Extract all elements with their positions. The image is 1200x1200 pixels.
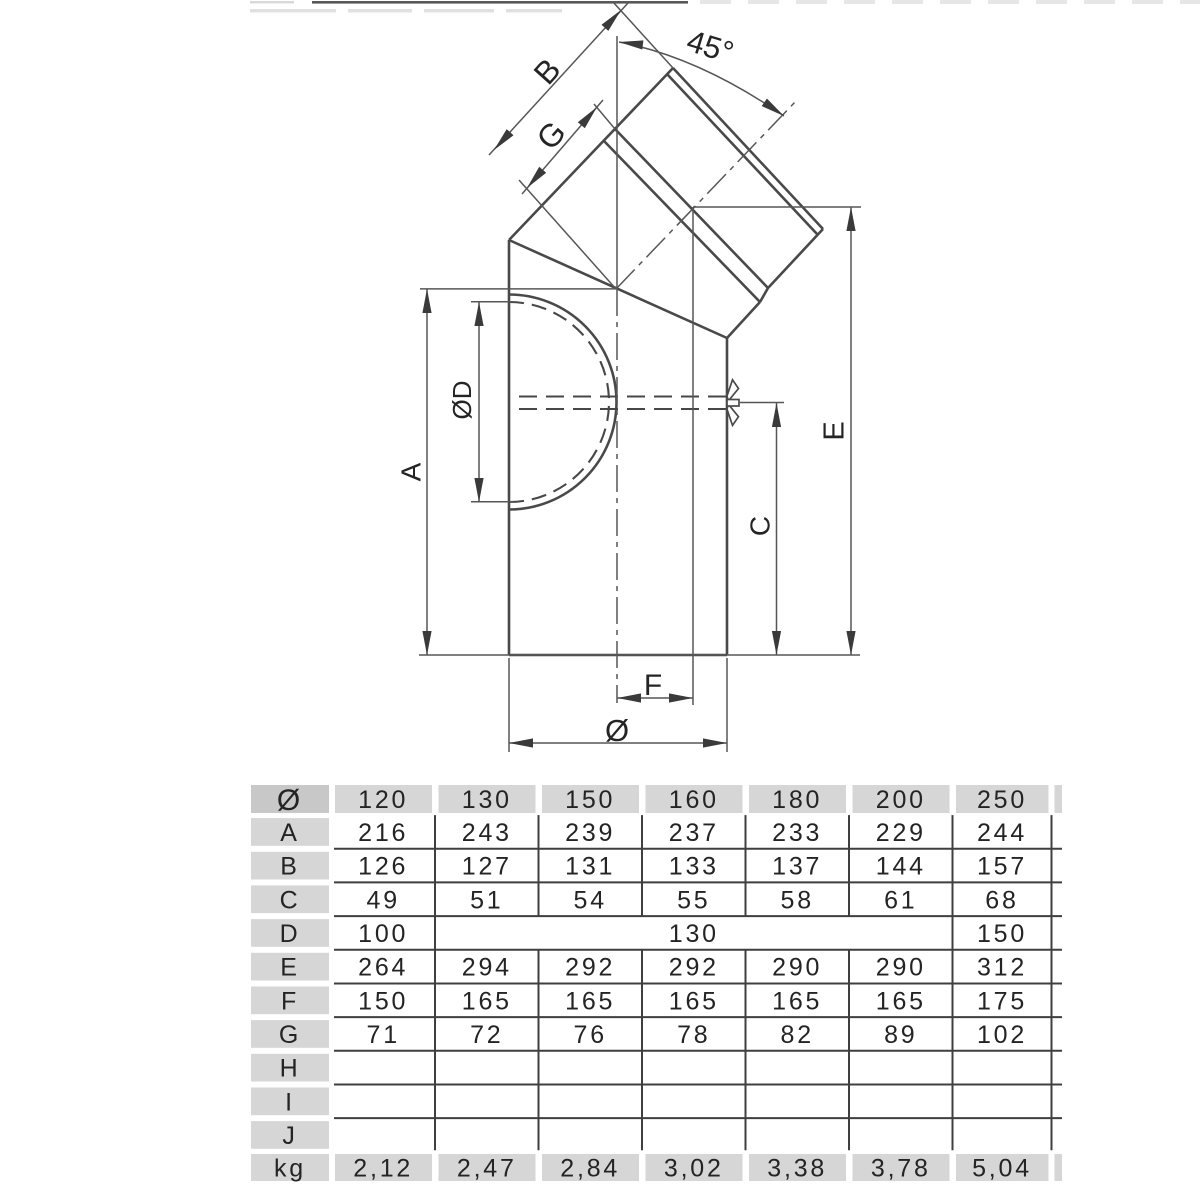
svg-text:237: 237	[669, 819, 719, 847]
svg-text:292: 292	[565, 954, 615, 982]
svg-text:89: 89	[884, 1021, 917, 1049]
svg-text:3,78: 3,78	[871, 1155, 931, 1183]
svg-text:290: 290	[876, 954, 926, 982]
svg-text:165: 165	[876, 987, 926, 1015]
svg-text:G: G	[279, 1021, 301, 1049]
svg-text:2,84: 2,84	[560, 1155, 620, 1183]
svg-text:3,02: 3,02	[664, 1155, 724, 1183]
svg-text:E: E	[819, 421, 851, 440]
svg-text:175: 175	[977, 987, 1027, 1015]
svg-text:165: 165	[772, 987, 822, 1015]
svg-text:180: 180	[772, 786, 822, 814]
svg-text:264: 264	[358, 954, 408, 982]
svg-text:144: 144	[876, 853, 926, 881]
svg-text:B: B	[280, 853, 299, 881]
svg-text:126: 126	[358, 853, 408, 881]
svg-text:kg: kg	[274, 1155, 306, 1183]
svg-text:49: 49	[366, 886, 399, 914]
svg-text:130: 130	[462, 786, 512, 814]
svg-text:165: 165	[462, 987, 512, 1015]
svg-text:120: 120	[358, 786, 408, 814]
svg-text:78: 78	[677, 1021, 710, 1049]
svg-text:D: D	[280, 920, 301, 948]
svg-text:Ø: Ø	[605, 713, 629, 748]
svg-text:5,04: 5,04	[972, 1155, 1032, 1183]
svg-text:243: 243	[462, 819, 512, 847]
svg-text:150: 150	[565, 786, 615, 814]
svg-text:2,12: 2,12	[353, 1155, 413, 1183]
svg-text:55: 55	[677, 886, 710, 914]
svg-text:250: 250	[977, 786, 1027, 814]
svg-text:54: 54	[573, 886, 606, 914]
svg-text:100: 100	[358, 920, 408, 948]
svg-text:C: C	[744, 516, 775, 536]
svg-text:160: 160	[669, 786, 719, 814]
svg-text:216: 216	[358, 819, 408, 847]
svg-text:E: E	[280, 954, 299, 982]
svg-text:200: 200	[876, 786, 926, 814]
svg-text:244: 244	[977, 819, 1027, 847]
svg-text:294: 294	[462, 954, 512, 982]
svg-text:C: C	[280, 886, 301, 914]
svg-text:131: 131	[565, 853, 615, 881]
svg-text:68: 68	[985, 886, 1018, 914]
svg-text:F: F	[644, 669, 662, 702]
svg-text:150: 150	[358, 987, 408, 1015]
svg-text:I: I	[285, 1088, 295, 1116]
svg-text:61: 61	[884, 886, 917, 914]
svg-text:58: 58	[780, 886, 813, 914]
svg-text:H: H	[280, 1055, 301, 1083]
svg-text:Ø: Ø	[277, 784, 303, 817]
svg-text:292: 292	[669, 954, 719, 982]
svg-text:2,47: 2,47	[457, 1155, 517, 1183]
svg-text:312: 312	[977, 954, 1027, 982]
svg-text:233: 233	[772, 819, 822, 847]
svg-text:J: J	[282, 1122, 297, 1150]
svg-text:130: 130	[669, 920, 719, 948]
svg-text:A: A	[395, 462, 426, 481]
svg-text:239: 239	[565, 819, 615, 847]
svg-text:165: 165	[669, 987, 719, 1015]
svg-text:82: 82	[780, 1021, 813, 1049]
svg-text:150: 150	[977, 920, 1027, 948]
svg-text:ØD: ØD	[447, 381, 477, 420]
svg-text:102: 102	[977, 1021, 1027, 1049]
svg-text:3,38: 3,38	[767, 1155, 827, 1183]
svg-text:76: 76	[573, 1021, 606, 1049]
svg-text:51: 51	[470, 886, 503, 914]
svg-text:229: 229	[876, 819, 926, 847]
svg-text:165: 165	[565, 987, 615, 1015]
svg-text:157: 157	[977, 853, 1027, 881]
svg-text:137: 137	[772, 853, 822, 881]
svg-text:72: 72	[470, 1021, 503, 1049]
svg-text:127: 127	[462, 853, 512, 881]
svg-text:F: F	[281, 987, 299, 1015]
svg-text:71: 71	[366, 1021, 399, 1049]
svg-text:290: 290	[772, 954, 822, 982]
svg-text:133: 133	[669, 853, 719, 881]
svg-text:A: A	[280, 819, 299, 847]
